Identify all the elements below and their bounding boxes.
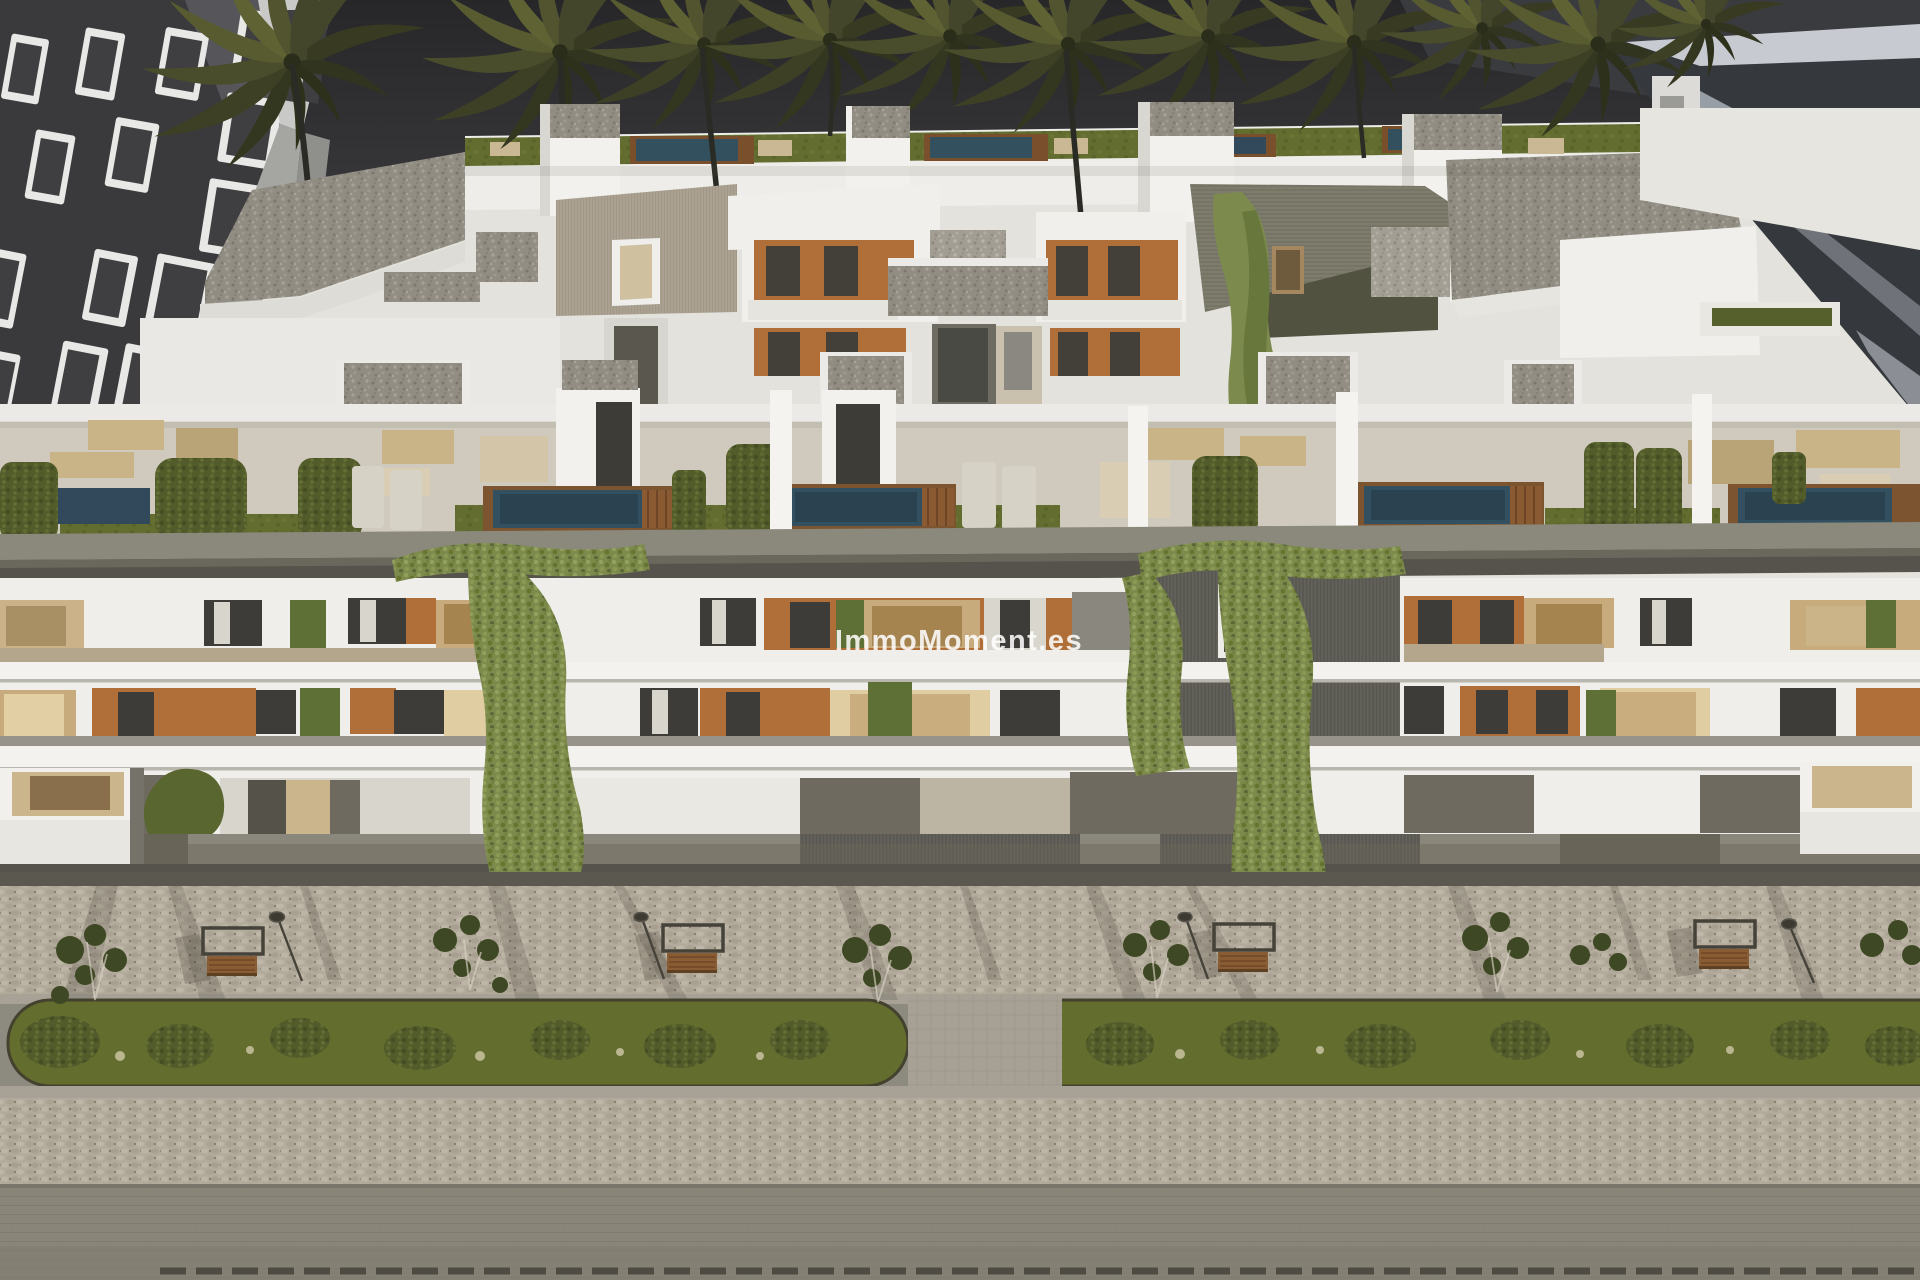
svg-text:ImmoMoment.es: ImmoMoment.es — [835, 625, 1083, 657]
